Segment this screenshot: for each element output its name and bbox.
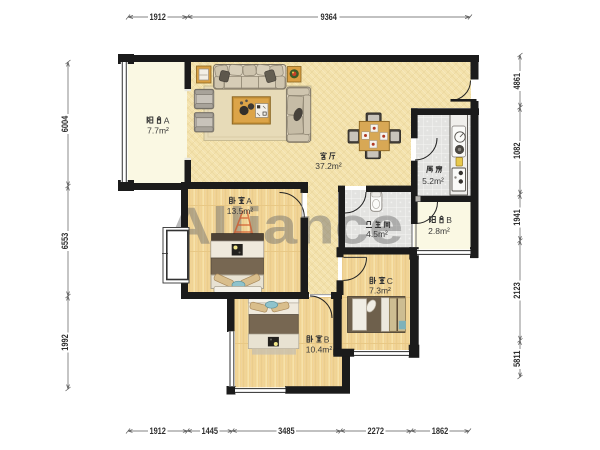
svg-text:A: A [164, 115, 170, 125]
svg-text:B: B [324, 334, 330, 344]
svg-text:4.5m²: 4.5m² [366, 229, 388, 239]
svg-text:13.5m²: 13.5m² [227, 206, 254, 216]
svg-text:B: B [446, 215, 452, 225]
svg-text:2272: 2272 [368, 426, 385, 436]
svg-text:1992: 1992 [60, 334, 70, 351]
svg-text:1445: 1445 [202, 426, 219, 436]
svg-text:1862: 1862 [432, 426, 449, 436]
svg-text:1082: 1082 [512, 142, 522, 159]
svg-text:Alliance: Alliance [167, 197, 403, 255]
svg-text:9364: 9364 [320, 12, 337, 22]
svg-text:7.3m²: 7.3m² [369, 285, 391, 295]
svg-text:3485: 3485 [278, 426, 295, 436]
svg-text:7.7m²: 7.7m² [147, 125, 169, 135]
svg-text:10.4m²: 10.4m² [306, 344, 333, 354]
svg-text:A: A [246, 196, 252, 206]
svg-text:2.8m²: 2.8m² [428, 226, 450, 236]
svg-text:1912: 1912 [149, 426, 166, 436]
svg-text:6553: 6553 [60, 233, 70, 250]
svg-text:5811: 5811 [512, 350, 522, 367]
svg-text:37.2m²: 37.2m² [315, 161, 342, 171]
svg-text:6004: 6004 [60, 116, 70, 133]
svg-text:2123: 2123 [512, 282, 522, 299]
svg-text:5.2m²: 5.2m² [422, 176, 444, 186]
svg-text:4861: 4861 [512, 73, 522, 90]
svg-text:C: C [387, 276, 393, 286]
svg-text:1912: 1912 [149, 12, 166, 22]
svg-text:1941: 1941 [512, 209, 522, 226]
